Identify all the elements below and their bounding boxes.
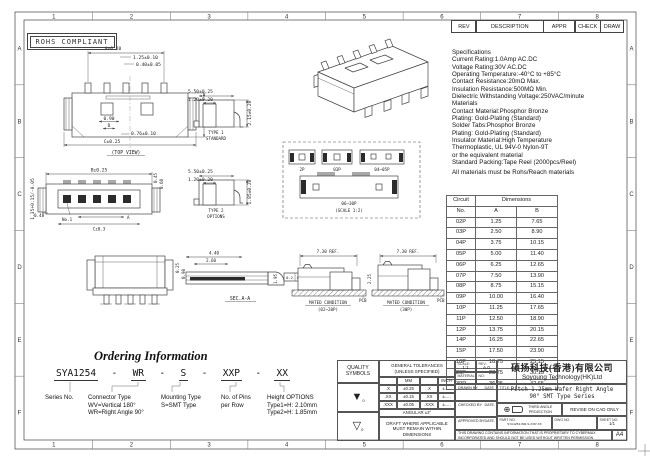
dim-table-cell: 22.65 <box>517 336 558 347</box>
view-label: MATED CONDITION <box>309 300 347 305</box>
dwg-no-label: DWG NO. <box>555 418 571 422</box>
sheet-no-label: SHEET NO. <box>600 418 619 422</box>
border-label: 2 <box>130 15 134 21</box>
dim-table-cell: 12.65 <box>517 260 558 271</box>
border-label: 6 <box>440 443 444 449</box>
ordering-group-line: Connector Type <box>88 394 144 402</box>
border-label: D <box>629 265 634 271</box>
dim-table-row: 04P3.7510.15 <box>447 239 558 250</box>
dim-table-cell: 05P <box>447 249 476 260</box>
header-circuit: Circuit <box>447 196 476 207</box>
border-label: F <box>18 411 22 417</box>
code-separator: - <box>111 368 117 379</box>
border-label: F <box>630 411 634 417</box>
tol-inch-header: INCH <box>438 377 455 385</box>
view-label: MATED CONDITION <box>387 300 425 305</box>
rev-col: REV <box>451 20 476 33</box>
dim-table-row: 06P6.2512.65 <box>447 260 558 271</box>
variants-box: 2P 03P 04~05P 06~30P (SCALE 1:2) <box>283 142 420 218</box>
no-label: NO: <box>479 374 485 378</box>
variant-label: 04~05P <box>374 167 390 172</box>
front-view-drawing <box>87 256 173 304</box>
dim-table-cell: 18.90 <box>517 314 558 325</box>
tolerance-cell: ±..... <box>438 385 455 393</box>
dim-table-cell: 10P <box>447 303 476 314</box>
dim-label: 0.48 <box>34 213 45 218</box>
dwg-no-cell: DWG NO. <box>552 416 597 430</box>
dim-label: C±0.3 <box>93 227 106 232</box>
code-height: XX <box>274 368 289 381</box>
mated-condition-2: 7.30 REF. 2.25 PCB MATED CONDITION (30P) <box>367 249 445 312</box>
material-cell: MATERIAL: <box>455 372 476 384</box>
spec-line: Insulation Resistance:500MΩ Min. <box>452 86 628 93</box>
ordering-code: SYA1254 - WR - S - XXP - XX <box>54 368 290 381</box>
spec-line: or the equivalent material <box>452 152 628 159</box>
variant-label: 03P <box>333 167 341 172</box>
spec-line: Solder Tabs:Phosphor Bronze <box>452 122 628 129</box>
quality-symbol-cell-2: ▽0 <box>337 412 379 441</box>
scale-cell: SCALE: 1:1 <box>455 360 476 372</box>
roughness-outline-icon: ▽ <box>353 420 361 432</box>
quality-symbols-header: QUALITY SYMBOLS <box>337 360 379 383</box>
pcb-label: PCB <box>437 298 445 303</box>
border-label: 5 <box>363 15 367 21</box>
dim-label: 5.50±0.25 <box>188 89 213 95</box>
dim-label: 2.60 <box>206 258 217 263</box>
ordering-group-5: Height OPTIONSType1=H: 2.10mmType2=H: 1.… <box>267 394 317 417</box>
angular-tolerance: ANGULAR ±3° <box>379 409 455 417</box>
part-no-label: PART NO. <box>500 418 516 422</box>
dim-table-cell: 8.75 <box>476 282 517 293</box>
dim-label: 1.25±0.10 <box>133 55 158 61</box>
code-mounting: S <box>179 368 189 381</box>
dim-label: 1.20±0.20 <box>188 97 213 103</box>
dim-table-cell: 17.65 <box>517 303 558 314</box>
ordering-group-line: Type2=H: 1.85mm <box>267 409 317 417</box>
ordering-group-line: Height OPTIONS <box>267 394 317 402</box>
dim-table-cell: 16.25 <box>476 336 517 347</box>
ordering-group-line: WV=Vertical 180° <box>88 402 144 410</box>
paper-size-cell: A4 <box>612 430 627 441</box>
dim-table-cell: 03P <box>447 228 476 239</box>
view-label: STANDARD <box>206 136 227 141</box>
check-col: CHECK <box>575 20 601 33</box>
specifications-block: SpecificationsCurrent Rating:1.0Amp AC.D… <box>452 49 628 176</box>
dim-label: 0.90 <box>103 116 114 122</box>
dim-label: B±0.25 <box>91 168 108 174</box>
spec-line: Current Rating:1.0Amp AC.DC <box>452 56 628 63</box>
tolerance-cell: .XXX <box>379 401 397 409</box>
dim-table-cell: 7.50 <box>476 271 517 282</box>
date-label: DATE <box>484 386 494 390</box>
date-label: DATE <box>484 403 494 407</box>
header-no: No. <box>447 206 476 217</box>
spec-line: Standard Packing:Tape Reel (2000pcs/Reel… <box>452 159 628 166</box>
view-label: TYPE 2 <box>208 208 224 213</box>
draft-note: DRAFT WHERE APPLICABLE MUST REMAIN WITHI… <box>379 417 455 441</box>
dim-label: 7.30 REF. <box>397 249 420 254</box>
spec-line: Voltage Rating:30V AC.DC <box>452 64 628 71</box>
drawing-title-line2: 90° SMT Type Series <box>529 394 594 401</box>
checked-by-cell: CHECKED BY DATE <box>455 401 497 417</box>
tolerance-cell: .X <box>420 385 438 393</box>
scale-label: (SCALE 1:2) <box>335 208 363 213</box>
dim-table-cell: 11P <box>447 314 476 325</box>
pcb-label: PCB <box>359 298 367 303</box>
ordering-group-2: Connector TypeWV=Vertical 180°WR=Right A… <box>88 394 144 417</box>
dim-table-row: 11P12.5018.90 <box>447 314 558 325</box>
view-label: TYPE 1 <box>208 130 224 135</box>
dim-table-cell: 12P <box>447 325 476 336</box>
sheet-no-cell: SHEET NO. 1/1 <box>597 416 627 430</box>
dim-table-cell: 1.25 <box>476 217 517 228</box>
drawn-label: DRAWN BY <box>458 386 478 390</box>
border-label: 4 <box>285 15 289 21</box>
dim-label: 2.25 <box>367 273 372 284</box>
checked-label: CHECKED BY <box>458 403 482 407</box>
dim-label: A <box>127 215 130 220</box>
proprietary-note: THIS DRAWING CONTAINS INFORMATION THAT I… <box>455 430 612 441</box>
ordering-group-line: Type1=H: 2.10mm <box>267 402 317 410</box>
code-separator: - <box>159 368 165 379</box>
third-angle-view-icon <box>512 406 523 413</box>
dim-label: 2.15±0.20 <box>247 100 253 125</box>
dim-table-cell: 23.90 <box>517 347 558 358</box>
dim-label: 0.76±0.10 <box>131 131 156 137</box>
border-label: C <box>17 192 22 198</box>
dim-table-cell: 08P <box>447 282 476 293</box>
rev-value: A.0 <box>483 365 490 370</box>
spec-line: Dielectric Withstanding Voltage:250VAC/m… <box>452 93 628 100</box>
title-label: TITLE: <box>500 386 511 390</box>
dim-table-header-row: Circuit Dimensions <box>447 196 558 207</box>
tolerance-cell: .XX <box>379 393 397 401</box>
tolerance-cell: ±..... <box>438 401 455 409</box>
tolerance-cell: ±..... <box>438 393 455 401</box>
dim-table-cell: 14P <box>447 336 476 347</box>
dim-table-cell: 7.65 <box>517 217 558 228</box>
dim-table-row: 07P7.5013.90 <box>447 271 558 282</box>
dim-table-cell: 5.00 <box>476 249 517 260</box>
ordering-group-line: WR=Right Angle 90° <box>88 409 144 417</box>
roughness-icon: ▼ <box>351 391 362 403</box>
dim-table-cell: 11.40 <box>517 249 558 260</box>
ordering-group-4: No. of Pinsper Row <box>221 394 251 409</box>
dim-table-cell: 07P <box>447 271 476 282</box>
dim-table-cell: 10.15 <box>517 239 558 250</box>
title-block: QUALITY SYMBOLS ▼0 ▽0 GENERAL TOLERANCES… <box>337 360 627 441</box>
border-label: C <box>629 192 634 198</box>
spec-line: Materials <box>452 100 628 107</box>
tolerance-cell: .XX <box>420 393 438 401</box>
ordering-heading: Ordering Information <box>94 349 208 364</box>
corner-mark <box>638 444 650 456</box>
dim-table-cell: 09P <box>447 293 476 304</box>
dim-table-cell: 06P <box>447 260 476 271</box>
projection-cell: ⊕ THIRD ANGLE PROJECTION <box>497 403 562 416</box>
dim-label: 0.25 <box>175 262 180 273</box>
variant-label: 06~30P <box>341 201 357 206</box>
view-label: (02~20P) <box>318 307 338 312</box>
border-label: D <box>17 265 22 271</box>
rohs-badge: ROHS COMPLIANT <box>27 33 117 50</box>
dim-table-row: 09P10.0016.40 <box>447 293 558 304</box>
dim-table-cell: 2.50 <box>476 228 517 239</box>
type2-side-view: 5.50±0.25 1.20±0.20 1.85±0.20 TYPE 2 OPT… <box>188 169 253 219</box>
header-a: A <box>476 206 517 217</box>
dim-table-cell: 11.25 <box>476 303 517 314</box>
ordering-group-line: S=SMT Type <box>161 402 201 410</box>
dim-label: D <box>108 123 111 129</box>
code-separator: - <box>255 368 261 379</box>
title-cell: TITLE: Pitch 1.25mm Wafer Right Angle 90… <box>497 384 627 403</box>
dim-table-cell: 20.15 <box>517 325 558 336</box>
spec-line: All materials must be Rohs/Reach materia… <box>452 169 628 176</box>
dim-label: 0.98 <box>181 268 186 279</box>
border-label: E <box>17 338 21 344</box>
quality-h2: SYMBOLS <box>346 372 370 378</box>
ordering-group-line: Series No. <box>45 394 73 402</box>
spec-line: Thermoplastic, UL 94V-0 Nylon-9T <box>452 144 628 151</box>
dim-table-cell: 15P <box>447 347 476 358</box>
spec-line: Insulator Material:High Temperature <box>452 137 628 144</box>
tol-mm-header: MM <box>397 377 420 385</box>
border-label: 1 <box>52 443 56 449</box>
border-label: 1 <box>52 15 56 21</box>
tolerance-cell: ±0.05 <box>397 401 420 409</box>
material-label: MATERIAL: <box>458 374 476 378</box>
dim-table-cell: 3.75 <box>476 239 517 250</box>
border-label: 5 <box>363 443 367 449</box>
dim-label: 1.20±0.20 <box>188 177 213 183</box>
header-dimensions: Dimensions <box>476 196 558 207</box>
revise-cell: REVISE ON CAD ONLY <box>562 403 627 416</box>
ordering-group-line: No. of Pins <box>221 394 251 402</box>
view-label: (30P) <box>400 307 413 312</box>
dim-table-cell: 12.50 <box>476 314 517 325</box>
company-cell: 硕扬科技(香港)有限公司 Soyoung Technology(HK)Ltd <box>497 360 627 384</box>
border-label: A <box>17 46 21 52</box>
dim-table-cell: 04P <box>447 239 476 250</box>
fcf-value: 0.2 <box>286 275 293 280</box>
view-label: OPTIONS <box>207 214 225 219</box>
code-connector-type: WR <box>131 368 146 381</box>
dim-table-cell: 10.00 <box>476 293 517 304</box>
tol-blank <box>420 377 438 385</box>
border-label: 8 <box>596 443 600 449</box>
dim-label: 1.85±0.20 <box>247 179 253 204</box>
dim-table-cell: 17.50 <box>476 347 517 358</box>
border-label: B <box>629 119 633 125</box>
bottom-view-drawing: 1.35+0.15/-0.05 B±0.25 0.45 0.60 0.48 No… <box>30 168 164 232</box>
ordering-connectors <box>70 382 284 392</box>
dim-table-cell: 13.75 <box>476 325 517 336</box>
date-label: DATE <box>484 419 494 423</box>
ordering-group-3: Mounting TypeS=SMT Type <box>161 394 201 409</box>
appr-col: APPR <box>543 20 575 33</box>
variant-label: 2P <box>299 167 305 172</box>
description-col: DESCRIPTION <box>476 20 544 33</box>
header-b: B <box>517 206 558 217</box>
type1-side-view: 5.50±0.25 1.20±0.20 2.15±0.20 TYPE 1 STA… <box>188 89 253 141</box>
scale-value: 1:1 <box>462 365 468 370</box>
isometric-view <box>314 39 428 117</box>
spec-line: Contact Resistance:20mΩ Max. <box>452 78 628 85</box>
dim-table-cell: 13.90 <box>517 271 558 282</box>
dim-table-header-row2: No. A B <box>447 206 558 217</box>
tolerance-cell: ±0.25 <box>397 385 420 393</box>
dim-table-cell: 15.15 <box>517 282 558 293</box>
dim-label: 5.50±0.25 <box>188 169 213 175</box>
roughness-sub: 0 <box>362 398 364 403</box>
part-no-cell: PART NO. SYA1254-WR-S-XXP-XX <box>497 416 552 430</box>
border-label: 7 <box>518 443 522 449</box>
border-label: 3 <box>207 15 211 21</box>
view-label: (TOP VIEW) <box>112 150 141 156</box>
rev-cell: REV: A.0 <box>476 360 497 372</box>
dim-table-cell: 16.40 <box>517 293 558 304</box>
tolerances-h2: (UNLESS SPECIFIED) <box>395 369 440 374</box>
tolerance-cell: ±0.15 <box>397 393 420 401</box>
revision-header: REV DESCRIPTION APPR CHECK DRAW <box>452 20 624 33</box>
spec-line: Plating: Gold-Plating (Standard) <box>452 115 628 122</box>
tolerance-cell: .XXX <box>420 401 438 409</box>
company-name-en: Soyoung Technology(HK)Ltd <box>522 374 602 381</box>
drawing-sheet: 1122334455667788AABBCCDDEEFF A±0.20 1.25… <box>0 0 650 460</box>
rohs-label: ROHS COMPLIANT <box>30 36 115 48</box>
border-label: 2 <box>130 443 134 449</box>
code-series: SYA1254 <box>54 368 98 381</box>
dim-label: C±0.25 <box>104 139 121 145</box>
dim-label: 4.40 <box>209 251 220 256</box>
dim-table-cell: 02P <box>447 217 476 228</box>
dim-label: 1.95 <box>273 273 278 284</box>
section-a-a-drawing: 4.40 2.60 0.25 0.98 0.2 0.10 SEC.A-A <box>175 251 308 303</box>
ordering-group-1: Series No. <box>45 394 73 402</box>
company-name-cn: 硕扬科技(香港)有限公司 <box>511 363 613 373</box>
code-separator: - <box>202 368 208 379</box>
no-cell: NO: <box>476 372 497 384</box>
border-label: 6 <box>440 15 444 21</box>
roughness-sub: 0 <box>361 427 363 432</box>
dim-table-cell: 6.25 <box>476 260 517 271</box>
approved-label: APPROVED BY <box>458 419 484 423</box>
ordering-group-line: per Row <box>221 402 251 410</box>
rev-label: REV: <box>479 362 487 366</box>
dim-table-row: 03P2.508.90 <box>447 228 558 239</box>
dim-label: 0.40±0.05 <box>136 62 161 68</box>
dim-table-row: 02P1.257.65 <box>447 217 558 228</box>
tolerances-header: GENERAL TOLERANCES (UNLESS SPECIFIED) <box>379 360 455 377</box>
dim-table-row: 12P13.7520.15 <box>447 325 558 336</box>
code-pins: XXP <box>221 368 242 381</box>
dim-table-row: 08P8.7515.15 <box>447 282 558 293</box>
part-no-value: SYA1254-WR-S-XXP-XX <box>507 423 542 427</box>
draw-col: DRAW <box>600 20 624 33</box>
border-label: E <box>629 338 633 344</box>
ordering-group-line: Mounting Type <box>161 394 201 402</box>
sheet-no-value: 1/1 <box>609 422 615 427</box>
spec-line: Operating Temperature:-40°C to +85°C <box>452 71 628 78</box>
dim-table-row: 05P5.0011.40 <box>447 249 558 260</box>
dim-table-row: 15P17.5023.90 <box>447 347 558 358</box>
dim-label: 7.30 REF. <box>317 249 340 254</box>
border-label: 3 <box>207 443 211 449</box>
dim-table-row: 10P11.2517.65 <box>447 303 558 314</box>
border-label: 4 <box>285 443 289 449</box>
dim-table-cell: 8.90 <box>517 228 558 239</box>
quality-symbol-cell-1: ▼0 <box>337 383 379 412</box>
spec-line: Contact Material:Phosphor Bronze <box>452 108 628 115</box>
dim-table-row: 14P16.2522.65 <box>447 336 558 347</box>
spec-line: Specifications <box>452 49 628 56</box>
tol-blank <box>379 377 397 385</box>
border-label: A <box>629 46 633 52</box>
spec-line: Plating: Gold-Plating (Standard) <box>452 130 628 137</box>
projection-label: THIRD ANGLE PROJECTION <box>525 405 555 414</box>
view-label: SEC.A-A <box>230 296 250 302</box>
dim-label: 0.60 <box>159 178 164 189</box>
dim-label: 0.45 <box>153 172 158 183</box>
border-label: B <box>17 119 21 125</box>
tolerance-cell: .X <box>379 385 397 393</box>
scale-label: SCALE: <box>458 362 470 366</box>
third-angle-icon: ⊕ <box>504 406 511 414</box>
drawn-by-cell: DRAWN BY DATE <box>455 384 497 401</box>
dim-label: No.1 <box>62 217 73 222</box>
approved-by-cell: APPROVED BY DATE <box>455 417 497 430</box>
